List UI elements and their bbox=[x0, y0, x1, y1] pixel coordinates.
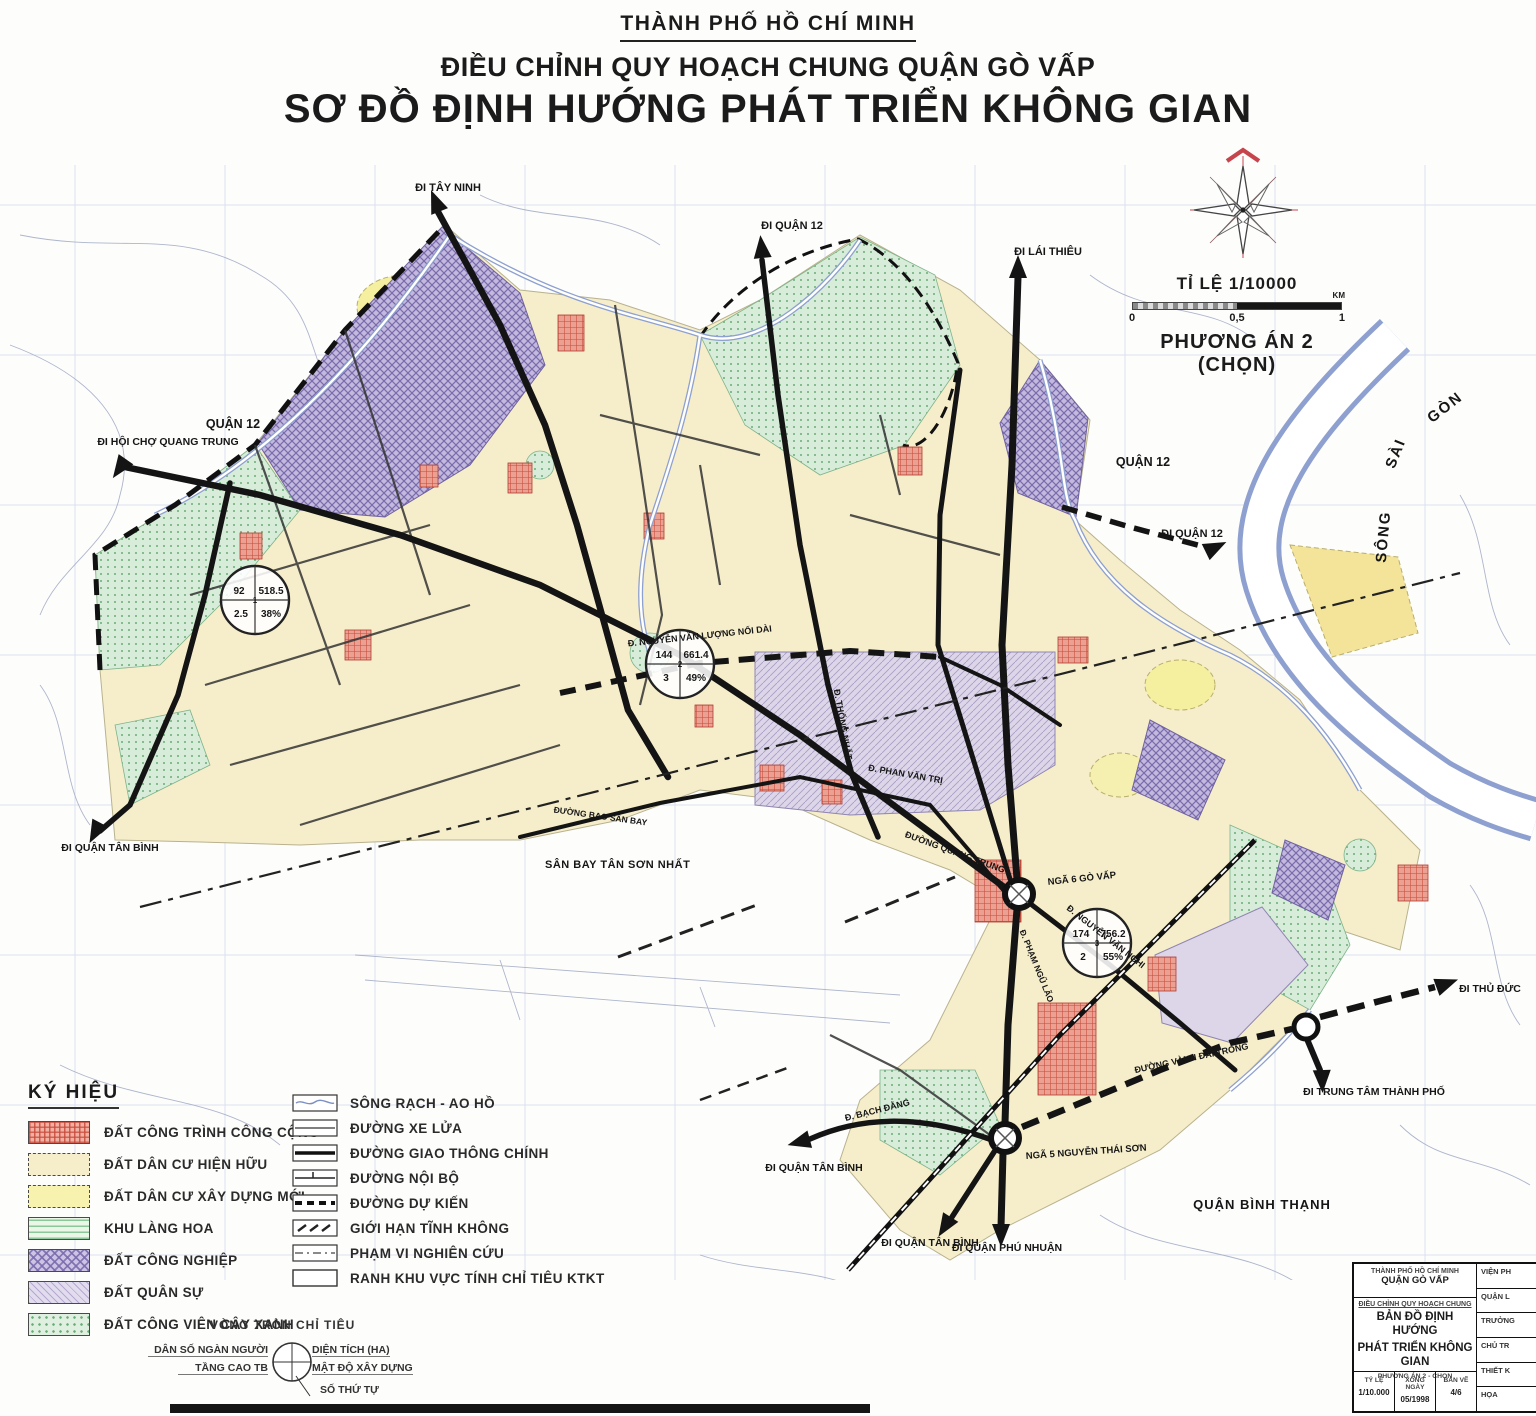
meta-date: XONG NGÀY 05/1998 bbox=[1395, 1372, 1436, 1411]
scale-bar-right bbox=[1237, 303, 1341, 309]
circle1-floors: 2.5 bbox=[234, 609, 248, 620]
sig-row: VIỆN PH bbox=[1477, 1264, 1536, 1289]
label-di-thu-duc: ĐI THỦ ĐỨC bbox=[1459, 982, 1521, 995]
title-block-org: THÀNH PHỐ HỒ CHÍ MINH QUẬN GÒ VẤP bbox=[1354, 1264, 1476, 1298]
circle3-pop: 174 bbox=[1073, 929, 1090, 940]
circle1-area: 518.5 bbox=[258, 586, 283, 597]
meta-sheet-label: BẢN VẼ bbox=[1436, 1377, 1476, 1384]
legend-label: KHU LÀNG HOA bbox=[104, 1221, 214, 1236]
arrow-di-quan-12-top-icon bbox=[751, 234, 771, 259]
sig-row: TRƯỞNG bbox=[1477, 1313, 1536, 1338]
swatch-military bbox=[28, 1281, 90, 1304]
legend-item-new-residential: ĐẤT DÂN CƯ XÂY DỰNG MỚI bbox=[28, 1185, 319, 1208]
sig-row: THIẾT K bbox=[1477, 1363, 1536, 1388]
legend-label: ĐƯỜNG DỰ KIẾN bbox=[350, 1196, 469, 1211]
sig-row: CHỦ TR bbox=[1477, 1338, 1536, 1363]
circle2-density: 49% bbox=[686, 673, 706, 684]
swatch-public-works bbox=[28, 1121, 90, 1144]
title-block-signatures: VIỆN PH QUẬN L TRƯỞNG CHỦ TR THIẾT K HỌA bbox=[1477, 1264, 1536, 1411]
indicator-legend-density: MẬT ĐỘ XÂY DỰNG bbox=[312, 1362, 413, 1375]
circle2-area: 661.4 bbox=[683, 650, 708, 661]
label-song: SÔNG bbox=[1372, 510, 1394, 564]
meta-scale-label: TỶ LỆ bbox=[1354, 1377, 1394, 1384]
title-block-meta: TỶ LỆ 1/10.000 XONG NGÀY 05/1998 BẢN VẼ … bbox=[1354, 1372, 1476, 1411]
map-title-line2: PHÁT TRIỂN KHÔNG GIAN bbox=[1354, 1341, 1476, 1370]
indicator-legend-floors: TẦNG CAO TB bbox=[178, 1362, 268, 1375]
label-di-hoi-cho: ĐI HỘI CHỢ QUANG TRUNG bbox=[97, 435, 238, 448]
circle2-seq: 2 bbox=[678, 660, 683, 669]
header-city: THÀNH PHỐ HỒ CHÍ MINH bbox=[620, 12, 915, 42]
legend-label: ĐƯỜNG XE LỬA bbox=[350, 1121, 462, 1136]
legend-label: ĐƯỜNG GIAO THÔNG CHÍNH bbox=[350, 1146, 549, 1161]
title-block-map-title: ĐIỀU CHỈNH QUY HOẠCH CHUNG BẢN ĐỒ ĐỊNH H… bbox=[1354, 1298, 1476, 1372]
legend-item-residential: ĐẤT DÂN CƯ HIỆN HỮU bbox=[28, 1153, 319, 1176]
legend-item-planned-road: ĐƯỜNG DỰ KIẾN bbox=[292, 1194, 605, 1212]
clearance-limit-2 bbox=[845, 877, 955, 922]
meta-sheet: BẢN VẼ 4/6 bbox=[1436, 1372, 1476, 1411]
legend-label: ĐẤT CÔNG TRÌNH CÔNG CỘNG bbox=[104, 1125, 319, 1140]
indicator-legend-pop: DÂN SỐ NGÀN NGƯỜI bbox=[148, 1344, 268, 1357]
compass-rose-icon bbox=[1182, 146, 1304, 266]
legend-title: KÝ HIỆU bbox=[28, 1082, 119, 1109]
planning-map-page: { "header": { "city": "THÀNH PHỐ HỒ CHÍ … bbox=[0, 0, 1536, 1416]
label-quan-binh-thanh: QUẬN BÌNH THẠNH bbox=[1193, 1197, 1331, 1212]
variant-label: PHƯƠNG ÁN 2 (CHỌN) bbox=[1122, 331, 1352, 377]
meta-scale: TỶ LỆ 1/10.000 bbox=[1354, 1372, 1395, 1411]
swatch-residential-new bbox=[28, 1185, 90, 1208]
symbol-clearance-icon bbox=[292, 1219, 338, 1237]
label-di-tan-binh-s1: ĐI QUẬN TÂN BÌNH bbox=[765, 1161, 862, 1174]
scale-tick-0: 0 bbox=[1129, 312, 1135, 324]
legend-item-clearance: GIỚI HẠN TĨNH KHÔNG bbox=[292, 1219, 605, 1237]
sig-row: QUẬN L bbox=[1477, 1289, 1536, 1314]
legend-area: KÝ HIỆU ĐẤT CÔNG TRÌNH CÔNG CỘNG ĐẤT DÂN… bbox=[28, 1082, 319, 1345]
scale-label: TỈ LỆ 1/10000 bbox=[1122, 274, 1352, 294]
map-title-line1: BẢN ĐỒ ĐỊNH HƯỚNG bbox=[1354, 1310, 1476, 1339]
legend-item-railway: ĐƯỜNG XE LỬA bbox=[292, 1119, 605, 1137]
label-di-trung-tam: ĐI TRUNG TÂM THÀNH PHỐ bbox=[1303, 1084, 1445, 1098]
scale-bar: KM bbox=[1132, 302, 1342, 310]
swatch-residential-existing bbox=[28, 1153, 90, 1176]
symbol-study-boundary-icon bbox=[292, 1244, 338, 1262]
legend-label: ĐẤT QUÂN SỰ bbox=[104, 1285, 204, 1300]
circle1-pop: 92 bbox=[233, 586, 245, 597]
label-gon: GÒN bbox=[1424, 388, 1467, 427]
legend-item-study-boundary: PHẠM VI NGHIÊN CỨU bbox=[292, 1244, 605, 1262]
symbol-main-road-icon bbox=[292, 1144, 338, 1162]
meta-sheet-value: 4/6 bbox=[1436, 1388, 1476, 1397]
arrow-bach-dang-icon bbox=[785, 1130, 812, 1153]
meta-scale-value: 1/10.000 bbox=[1354, 1388, 1394, 1397]
circle1-density: 38% bbox=[261, 609, 281, 620]
circle3-seq: 3 bbox=[1095, 939, 1100, 948]
sig-row: HỌA bbox=[1477, 1387, 1536, 1411]
clearance-limit-3 bbox=[700, 1067, 790, 1100]
label-quan-12-nw: QUẬN 12 bbox=[206, 416, 260, 431]
indicator-legend-area: DIỆN TÍCH (HA) bbox=[312, 1344, 390, 1357]
scale-ticks: 0 0,5 1 bbox=[1132, 312, 1342, 325]
label-di-tan-binh-w: ĐI QUẬN TÂN BÌNH bbox=[61, 841, 158, 854]
symbol-ktkt-boundary-icon bbox=[292, 1269, 338, 1287]
scale-unit: KM bbox=[1333, 291, 1345, 300]
label-di-phu-nhuan: ĐI QUẬN PHÚ NHUẬN bbox=[952, 1241, 1062, 1254]
legend-label: SÔNG RẠCH - AO HỒ bbox=[350, 1096, 495, 1111]
road-j3-city bbox=[1307, 1039, 1320, 1070]
swatch-park bbox=[28, 1313, 90, 1336]
meta-date-value: 05/1998 bbox=[1395, 1395, 1435, 1404]
symbol-river-icon bbox=[292, 1094, 338, 1112]
legend-item-main-road: ĐƯỜNG GIAO THÔNG CHÍNH bbox=[292, 1144, 605, 1162]
label-di-quan-12-east: ĐI QUẬN 12 bbox=[1161, 527, 1223, 540]
indicator-circle-1: 92 518.5 2.5 38% 1 bbox=[221, 566, 289, 634]
swatch-industrial bbox=[28, 1249, 90, 1272]
legend-item-river: SÔNG RẠCH - AO HỒ bbox=[292, 1094, 605, 1112]
title-block: THÀNH PHỐ HỒ CHÍ MINH QUẬN GÒ VẤP ĐIỀU C… bbox=[1352, 1262, 1536, 1413]
symbol-internal-road-icon bbox=[292, 1169, 338, 1187]
legend-item-ktkt-boundary: RANH KHU VỰC TÍNH CHỈ TIÊU KTKT bbox=[292, 1269, 605, 1287]
label-sai: SÀI bbox=[1382, 436, 1409, 471]
indicator-legend-seq: SỐ THỨ TỰ bbox=[320, 1384, 379, 1396]
arrow-di-lai-thieu-icon bbox=[1009, 255, 1027, 278]
legend-label: ĐẤT DÂN CƯ XÂY DỰNG MỚI bbox=[104, 1189, 305, 1204]
legend-item-public: ĐẤT CÔNG TRÌNH CÔNG CỘNG bbox=[28, 1121, 319, 1144]
indicator-legend-title: VÒNG TRÒN CHỈ TIÊU bbox=[210, 1318, 355, 1332]
label-di-tay-ninh: ĐI TÂY NINH bbox=[415, 181, 481, 194]
circle2-pop: 144 bbox=[656, 650, 673, 661]
indicator-circle-diagram-icon bbox=[270, 1340, 314, 1398]
meta-date-label: XONG NGÀY bbox=[1395, 1377, 1435, 1391]
scale-tick-1: 1 bbox=[1339, 312, 1345, 324]
label-di-lai-thieu: ĐI LÁI THIÊU bbox=[1014, 245, 1082, 258]
circle3-floors: 2 bbox=[1080, 952, 1086, 963]
indicator-circle-legend: VÒNG TRÒN CHỈ TIÊU DÂN SỐ NGÀN NGƯỜI TẦN… bbox=[130, 1318, 490, 1414]
org-district: QUẬN GÒ VẤP bbox=[1354, 1275, 1476, 1286]
legend-lines: SÔNG RẠCH - AO HỒ ĐƯỜNG XE LỬA ĐƯỜNG GIA… bbox=[292, 1094, 605, 1294]
map-header: THÀNH PHỐ HỒ CHÍ MINH ĐIỀU CHỈNH QUY HOẠ… bbox=[0, 12, 1536, 132]
legend-item-military: ĐẤT QUÂN SỰ bbox=[28, 1281, 319, 1304]
header-subtitle: ĐIỀU CHỈNH QUY HOẠCH CHUNG QUẬN GÒ VẤP bbox=[0, 52, 1536, 83]
roundabout-ring-road bbox=[1294, 1015, 1318, 1039]
road-ring-dashed-east bbox=[1320, 987, 1435, 1017]
scale-box: TỈ LỆ 1/10000 KM 0 0,5 1 PHƯƠNG ÁN 2 (CH… bbox=[1122, 274, 1352, 377]
legend-label: ĐƯỜNG NỘI BỘ bbox=[350, 1171, 459, 1186]
page-title: SƠ ĐỒ ĐỊNH HƯỚNG PHÁT TRIỂN KHÔNG GIAN bbox=[0, 87, 1536, 132]
label-quan-12-ne: QUẬN 12 bbox=[1116, 454, 1170, 469]
scale-bar-left bbox=[1133, 303, 1237, 309]
scan-edge-bar bbox=[170, 1404, 870, 1413]
legend-item-industrial: ĐẤT CÔNG NGHIỆP bbox=[28, 1249, 319, 1272]
project-name: ĐIỀU CHỈNH QUY HOẠCH CHUNG bbox=[1354, 1301, 1476, 1308]
symbol-railway-icon bbox=[292, 1119, 338, 1137]
title-block-left: THÀNH PHỐ HỒ CHÍ MINH QUẬN GÒ VẤP ĐIỀU C… bbox=[1354, 1264, 1477, 1411]
arrow-di-thu-duc-icon bbox=[1433, 971, 1461, 996]
scale-tick-mid: 0,5 bbox=[1229, 312, 1244, 324]
legend-label: GIỚI HẠN TĨNH KHÔNG bbox=[350, 1221, 509, 1236]
clearance-limit-1 bbox=[618, 903, 762, 957]
circle2-floors: 3 bbox=[663, 673, 669, 684]
org-city: THÀNH PHỐ HỒ CHÍ MINH bbox=[1354, 1268, 1476, 1275]
label-san-bay: SÂN BAY TÂN SƠN NHẤT bbox=[545, 858, 690, 871]
symbol-planned-road-icon bbox=[292, 1194, 338, 1212]
label-di-quan-12-top: ĐI QUẬN 12 bbox=[761, 219, 823, 232]
legend-item-internal-road: ĐƯỜNG NỘI BỘ bbox=[292, 1169, 605, 1187]
legend-label: PHẠM VI NGHIÊN CỨU bbox=[350, 1246, 504, 1261]
legend-label: RANH KHU VỰC TÍNH CHỈ TIÊU KTKT bbox=[350, 1271, 605, 1286]
legend-item-flower-village: KHU LÀNG HOA bbox=[28, 1217, 319, 1240]
legend-label: ĐẤT CÔNG NGHIỆP bbox=[104, 1253, 238, 1268]
swatch-flower-village bbox=[28, 1217, 90, 1240]
circle1-seq: 1 bbox=[253, 596, 258, 605]
legend-label: ĐẤT DÂN CƯ HIỆN HỮU bbox=[104, 1157, 268, 1172]
